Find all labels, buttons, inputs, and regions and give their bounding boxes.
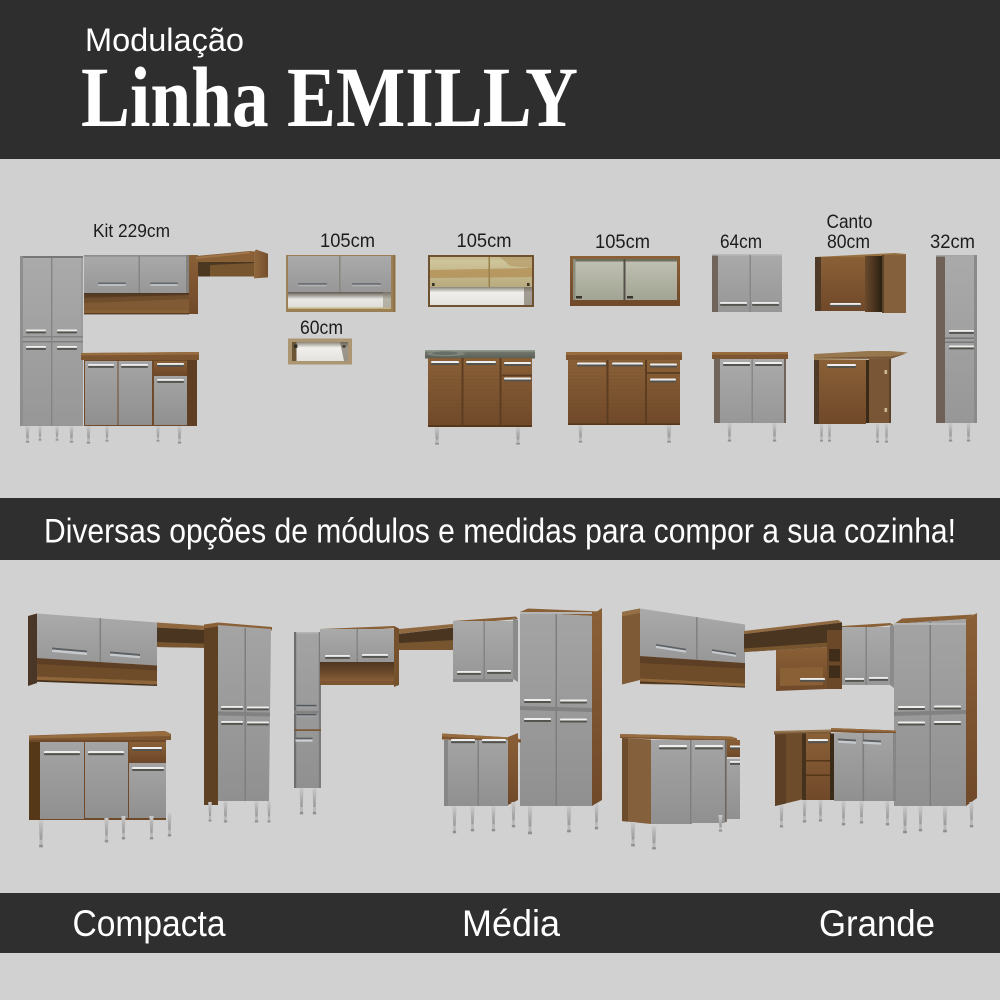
svg-text:105cm: 105cm (595, 231, 650, 253)
svg-text:Canto: Canto (827, 211, 873, 233)
svg-text:Média: Média (462, 903, 560, 944)
svg-text:Diversas opções de módulos e m: Diversas opções de módulos e medidas par… (44, 513, 956, 551)
svg-text:Linha EMILLY: Linha EMILLY (81, 49, 578, 145)
svg-text:Compacta: Compacta (73, 903, 226, 944)
svg-text:105cm: 105cm (320, 230, 375, 252)
svg-text:80cm: 80cm (827, 231, 870, 253)
svg-text:60cm: 60cm (300, 317, 343, 339)
svg-text:64cm: 64cm (720, 231, 762, 253)
svg-text:32cm: 32cm (930, 231, 975, 253)
svg-text:105cm: 105cm (457, 230, 512, 252)
svg-text:Grande: Grande (819, 903, 935, 944)
svg-text:Kit 229cm: Kit 229cm (93, 220, 170, 241)
